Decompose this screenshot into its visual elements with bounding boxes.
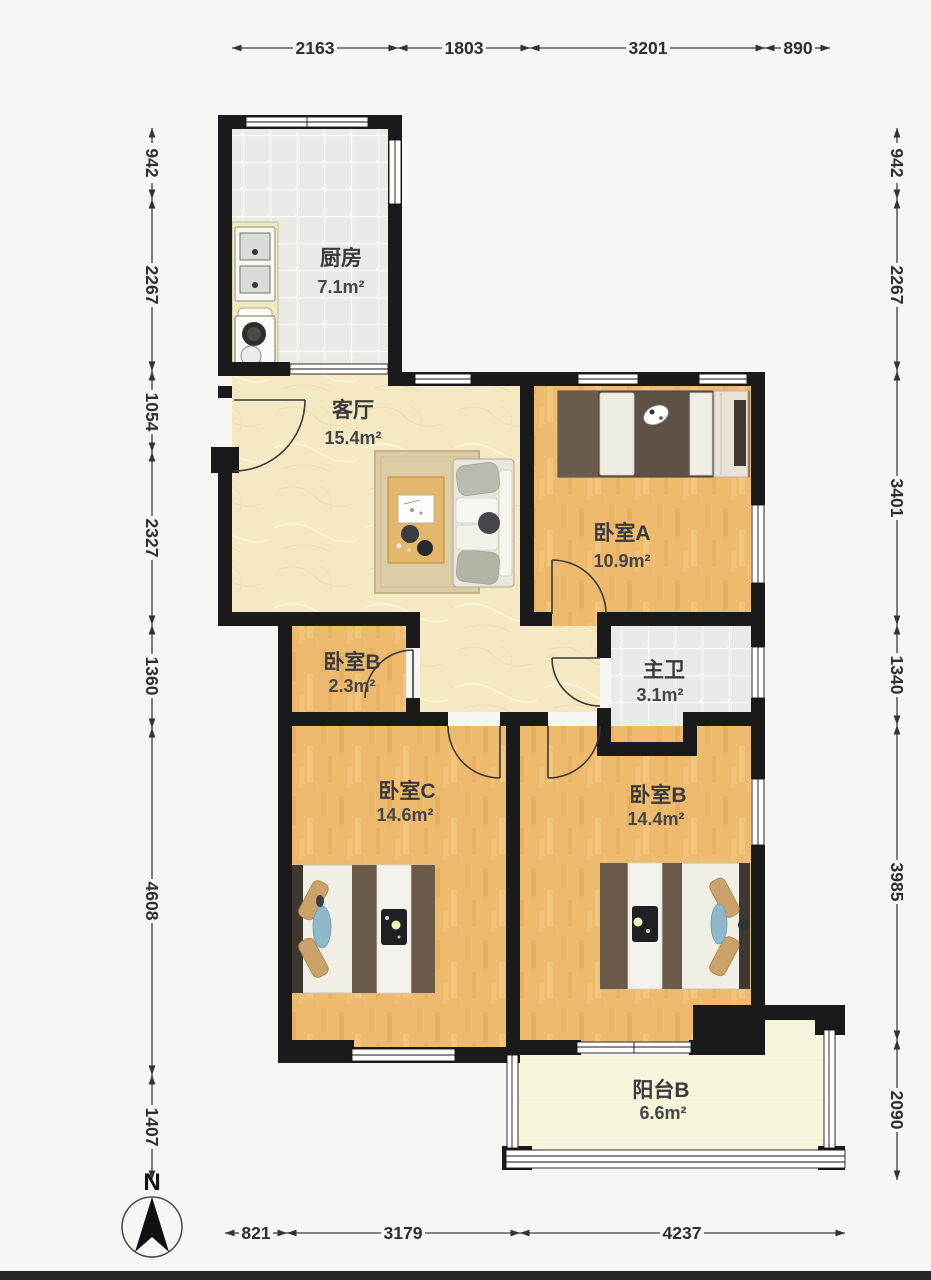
dim-left-2: 2267 bbox=[142, 266, 162, 305]
bedroom-c-bed bbox=[292, 865, 435, 993]
bedroom-b-bed bbox=[600, 863, 750, 989]
master-bath-window bbox=[752, 647, 764, 698]
compass: N bbox=[122, 1169, 182, 1257]
dim-right-1: 942 bbox=[887, 148, 907, 177]
dim-right-3: 3401 bbox=[887, 479, 907, 518]
bottom-bar bbox=[0, 1271, 931, 1280]
bedroom-c-area: 14.6m² bbox=[376, 805, 433, 825]
dim-top-2: 1803 bbox=[445, 38, 484, 58]
dim-right-4: 1340 bbox=[887, 656, 907, 695]
kitchen-top-window bbox=[246, 117, 368, 127]
kitchen-stove bbox=[235, 316, 275, 370]
dimensions-left: 942 2267 1054 2327 1360 4608 1407 bbox=[142, 128, 162, 1180]
bedroom-b-small-label: 卧室B bbox=[323, 650, 380, 674]
dimensions-bottom: 821 3179 4237 bbox=[225, 1223, 845, 1243]
kitchen-counter bbox=[232, 222, 278, 374]
bedroom-b-label: 卧室B bbox=[629, 783, 686, 807]
balcony-label: 阳台B bbox=[632, 1078, 689, 1102]
bedroom-c-bottom-window bbox=[352, 1049, 455, 1061]
dim-right-5: 3985 bbox=[887, 863, 907, 902]
kitchen-pass-opening bbox=[290, 364, 388, 374]
kitchen-area: 7.1m² bbox=[317, 277, 364, 297]
dim-left-7: 1407 bbox=[142, 1108, 162, 1147]
floor-plan-canvas: 厨房 7.1m² 客厅 15.4m² 卧室A 10.9m² 卧室B 2.3m² … bbox=[0, 0, 931, 1280]
dim-top-1: 2163 bbox=[296, 38, 335, 58]
master-bath-label: 主卫 bbox=[643, 659, 685, 682]
bedroom-b-small-area: 2.3m² bbox=[328, 676, 375, 696]
dim-left-1: 942 bbox=[142, 148, 162, 177]
living-room-area: 15.4m² bbox=[324, 428, 381, 448]
sofa bbox=[453, 459, 514, 587]
dim-left-6: 4608 bbox=[142, 882, 162, 921]
coffee-table bbox=[388, 477, 444, 563]
compass-needle-icon bbox=[135, 1197, 169, 1252]
dim-left-3: 1054 bbox=[142, 393, 162, 432]
living-top-window bbox=[415, 374, 471, 384]
balcony-right-window bbox=[824, 1030, 835, 1148]
dim-left-5: 1360 bbox=[142, 657, 162, 696]
dimensions-right: 942 2267 3401 1340 3985 2090 bbox=[887, 128, 907, 1180]
bedroom-a-top-window-1 bbox=[578, 374, 638, 384]
dim-bottom-1: 821 bbox=[241, 1223, 270, 1243]
dim-top-4: 890 bbox=[783, 38, 812, 58]
dim-right-2: 2267 bbox=[887, 266, 907, 305]
kitchen-right-window bbox=[389, 140, 401, 204]
balcony-slider-window bbox=[577, 1042, 691, 1053]
master-bath-area: 3.1m² bbox=[636, 685, 683, 705]
balcony-left-window bbox=[507, 1055, 518, 1148]
bedroom-a-label: 卧室A bbox=[593, 521, 650, 545]
kitchen-label: 厨房 bbox=[320, 246, 362, 270]
bedroom-c-label: 卧室C bbox=[378, 779, 435, 803]
dim-right-6: 2090 bbox=[887, 1091, 907, 1130]
bedroom-a-area: 10.9m² bbox=[593, 551, 650, 571]
dimensions-top: 2163 1803 3201 890 bbox=[232, 38, 830, 58]
dim-top-3: 3201 bbox=[629, 38, 668, 58]
living-room-label: 客厅 bbox=[332, 398, 374, 422]
bedroom-a-right-window bbox=[752, 505, 764, 583]
compass-north-label: N bbox=[143, 1169, 160, 1196]
dim-bottom-2: 3179 bbox=[384, 1223, 423, 1243]
dim-bottom-3: 4237 bbox=[663, 1223, 702, 1243]
bedroom-b-right-window bbox=[752, 779, 764, 845]
balcony-bottom-window bbox=[506, 1150, 845, 1168]
balcony-area: 6.6m² bbox=[639, 1103, 686, 1123]
living-room-furniture bbox=[375, 451, 514, 593]
bedroom-a-top-window-2 bbox=[699, 374, 747, 384]
bedroom-a-bed bbox=[558, 391, 749, 477]
dim-left-4: 2327 bbox=[142, 519, 162, 558]
bedroom-b-area: 14.4m² bbox=[627, 809, 684, 829]
floor-plan-screenshot: 厨房 7.1m² 客厅 15.4m² 卧室A 10.9m² 卧室B 2.3m² … bbox=[0, 0, 931, 1280]
